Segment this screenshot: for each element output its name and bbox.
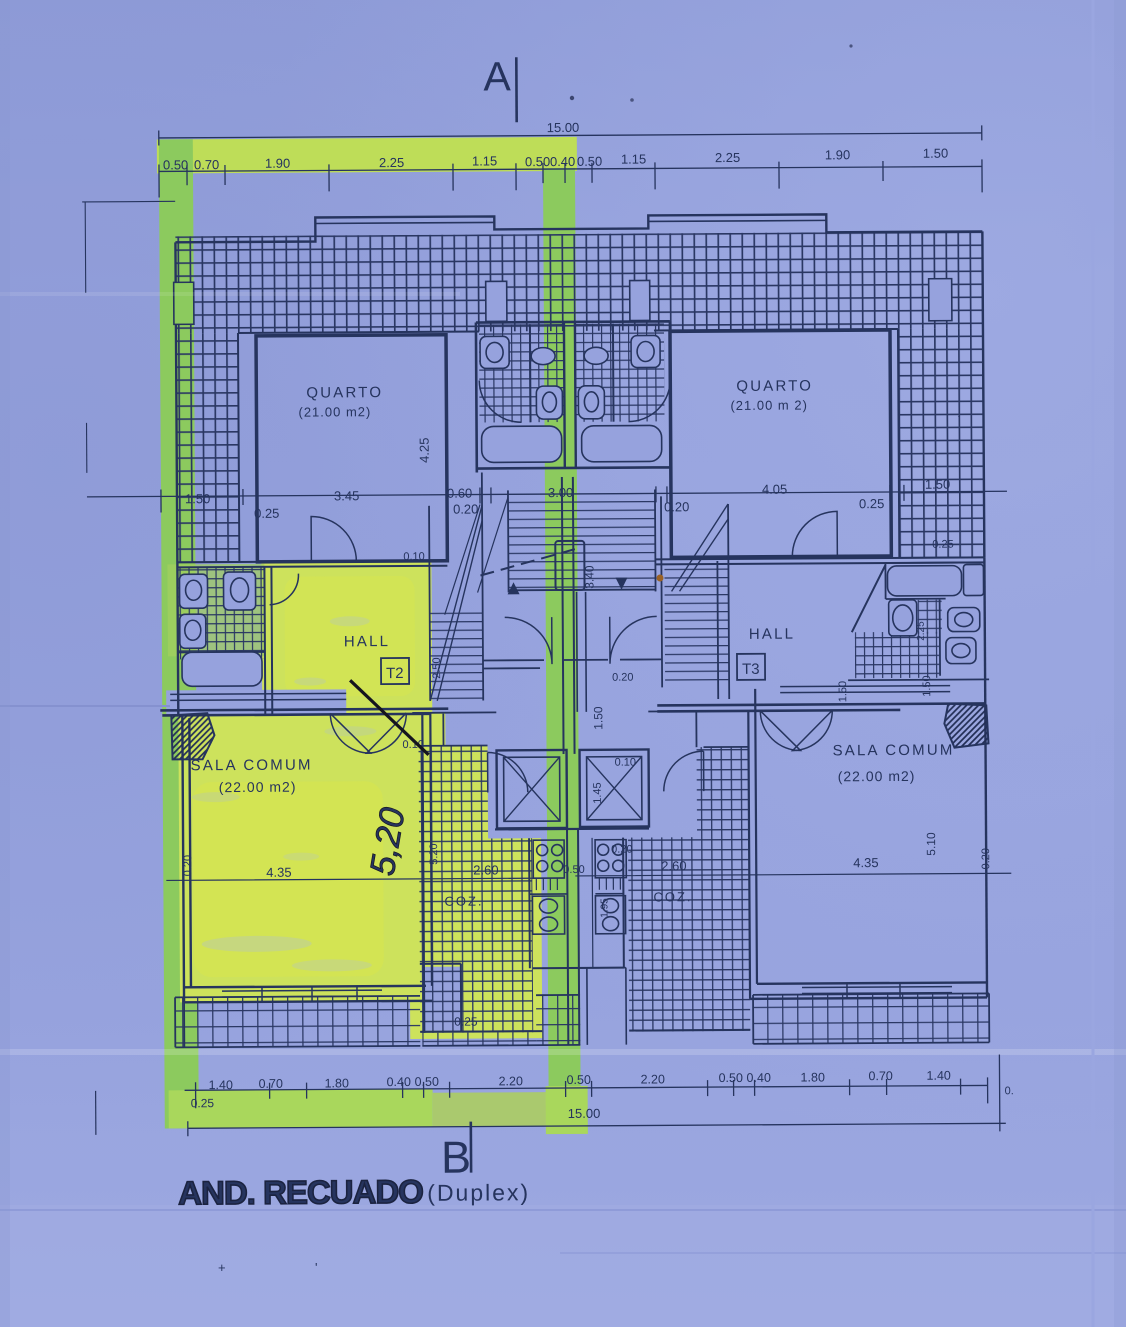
svg-text:2.20: 2.20 [499,1074,523,1088]
svg-text:0.70: 0.70 [194,157,219,172]
svg-text:1.15: 1.15 [621,151,646,166]
svg-text:3.40: 3.40 [582,565,596,589]
svg-text:0.: 0. [1005,1085,1014,1097]
svg-text:1.45: 1.45 [592,782,604,803]
svg-text:1.50: 1.50 [185,491,210,506]
svg-text:2.20: 2.20 [641,1072,665,1086]
svg-text:SALA COMUM: SALA COMUM [191,757,313,775]
svg-text:0.20: 0.20 [453,502,478,517]
svg-text:T2: T2 [386,665,404,682]
svg-text:QUARTO: QUARTO [736,377,813,394]
svg-text:HALL: HALL [344,633,390,650]
svg-text:0.50: 0.50 [577,154,602,169]
svg-text:1.50: 1.50 [837,681,849,702]
svg-text:0.25: 0.25 [859,496,884,511]
svg-text:AND. RECUADO: AND. RECUADO [178,1173,423,1211]
svg-text:2.25: 2.25 [715,150,740,165]
svg-text:1.90: 1.90 [265,156,290,171]
svg-text:0.50: 0.50 [525,154,550,169]
svg-text:0.50: 0.50 [718,1071,742,1085]
svg-text:0.70: 0.70 [868,1069,892,1083]
svg-text:15.00: 15.00 [568,1106,601,1121]
svg-text:A: A [483,53,511,99]
svg-text:3.00: 3.00 [548,485,573,500]
svg-text:(21.00 m2): (21.00 m2) [298,404,371,419]
svg-text:4.35: 4.35 [853,855,878,870]
svg-text:(22.00 m2): (22.00 m2) [219,779,297,795]
svg-text:0.70: 0.70 [259,1077,283,1091]
svg-text:1.50: 1.50 [921,675,933,696]
svg-text:0.50: 0.50 [163,157,188,172]
svg-text:0.25: 0.25 [254,506,279,521]
svg-text:0.40: 0.40 [550,154,575,169]
svg-text:0.20: 0.20 [664,499,689,514]
svg-text:1.40: 1.40 [209,1078,233,1092]
svg-text:4.35: 4.35 [266,865,291,880]
svg-text:0.50: 0.50 [415,1075,439,1089]
svg-text:1.15: 1.15 [472,153,497,168]
svg-text:0.20: 0.20 [611,844,632,856]
svg-text:SALA COMUM: SALA COMUM [832,742,954,760]
svg-text:5.20: 5.20 [428,843,440,864]
svg-text:(21.00 m 2): (21.00 m 2) [730,397,808,412]
svg-text:1.50: 1.50 [591,706,605,730]
svg-text:(Duplex): (Duplex) [427,1179,530,1206]
svg-text:COZ.: COZ. [444,893,483,908]
svg-text:4.25: 4.25 [417,437,432,462]
svg-text:0.10: 0.10 [403,551,424,563]
svg-text:HALL: HALL [749,626,795,643]
svg-text:B: B [441,1132,471,1183]
svg-text:3.45: 3.45 [334,488,359,503]
svg-text:2.50: 2.50 [431,657,443,678]
svg-text:0.50: 0.50 [567,1073,591,1087]
svg-text:2.25: 2.25 [916,621,927,641]
svg-text:1.40: 1.40 [926,1069,950,1083]
svg-text:0.25: 0.25 [191,1096,215,1110]
svg-text:0.10: 0.10 [615,757,636,769]
svg-text:15.00: 15.00 [547,120,580,135]
svg-text:1.90: 1.90 [825,147,850,162]
svg-text:0.60: 0.60 [447,486,472,501]
svg-text:0.20: 0.20 [980,848,992,869]
svg-text:2.60: 2.60 [473,862,498,877]
svg-text:2.25: 2.25 [379,155,404,170]
svg-text:0.20: 0.20 [612,672,633,684]
svg-text:QUARTO: QUARTO [306,384,383,401]
svg-text:5.10: 5.10 [924,832,938,856]
svg-text:1.50: 1.50 [925,477,950,492]
svg-text:1.80: 1.80 [325,1076,349,1090]
svg-text:1.80: 1.80 [800,1070,824,1084]
svg-text:0.20: 0.20 [182,855,194,876]
svg-text:0.50: 0.50 [563,864,584,876]
svg-text:(22.00 m2): (22.00 m2) [838,768,916,784]
svg-text:COZ.: COZ. [653,889,692,904]
svg-text:T3: T3 [742,661,760,678]
svg-text:4.05: 4.05 [762,482,787,497]
svg-text:0.25: 0.25 [454,1015,478,1029]
svg-text:2.60: 2.60 [661,858,686,873]
svg-text:1.50: 1.50 [923,146,948,161]
svg-text:1.95: 1.95 [599,898,610,918]
svg-text:0.40: 0.40 [746,1071,770,1085]
svg-text:0.40: 0.40 [387,1075,411,1089]
svg-text:0.25: 0.25 [932,539,953,551]
